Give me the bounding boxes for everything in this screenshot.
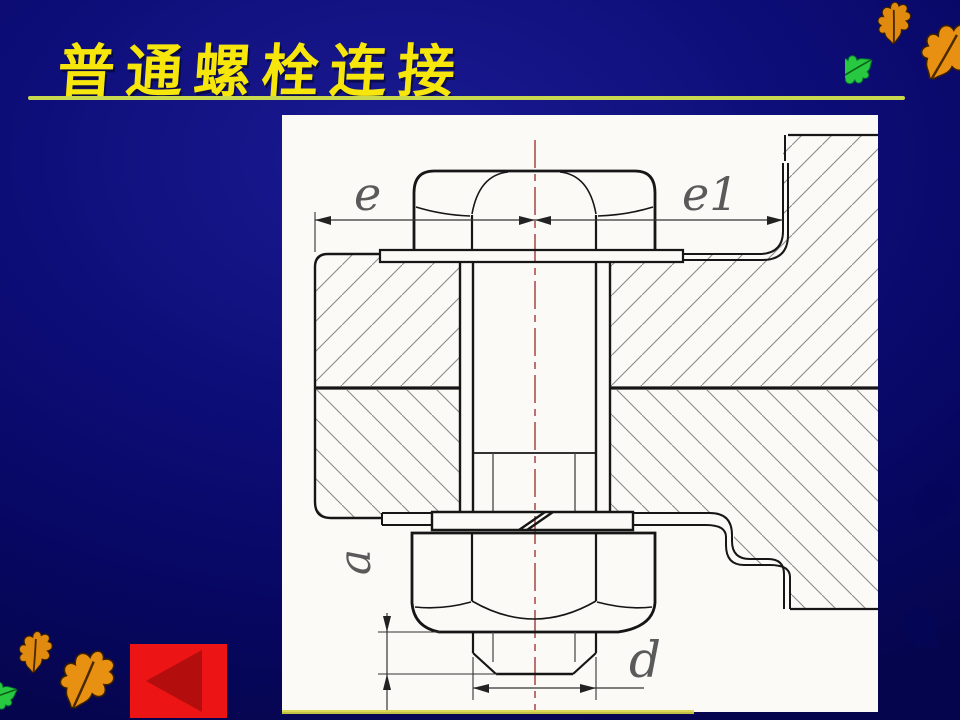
bottom-washer (432, 512, 633, 530)
oak-leaves-bottom-left (0, 615, 115, 720)
orange-oak-leaf-icon (49, 640, 115, 719)
orange-oak-leaf-icon (15, 628, 55, 675)
orange-oak-leaf-icon (909, 12, 960, 91)
leaf-silhouette-icon (893, 599, 951, 660)
oak-leaves-top-right (845, 0, 960, 118)
hatch-lower-right-plate (610, 390, 878, 609)
leaf-silhouette-icon (903, 472, 960, 536)
engineering-drawing: e e1 a d (282, 115, 878, 712)
green-oak-leaf-icon (845, 49, 878, 90)
leaf-silhouettes-right (880, 420, 960, 670)
drawing-panel: e e1 a d (282, 115, 878, 712)
dimension-d: d (473, 631, 661, 700)
dimension-label-e1: e1 (682, 167, 739, 221)
dimension-label-a: a (330, 549, 381, 575)
hatch-upper-left-plate (315, 254, 460, 386)
back-arrow-icon (146, 650, 202, 712)
orange-oak-leaf-icon (875, 0, 912, 45)
green-oak-leaf-icon (0, 678, 20, 712)
hatch-lower-left-plate (315, 390, 460, 518)
top-washer (380, 250, 683, 262)
bottom-accent-line (282, 710, 694, 714)
lower-left-sheet (382, 513, 432, 525)
title-underline (28, 96, 905, 100)
hex-nut (412, 533, 655, 632)
dimension-label-d: d (629, 631, 661, 689)
back-button[interactable] (130, 644, 227, 718)
slide: 普通螺栓连接 (0, 0, 960, 720)
dimension-label-e: e (354, 167, 381, 221)
